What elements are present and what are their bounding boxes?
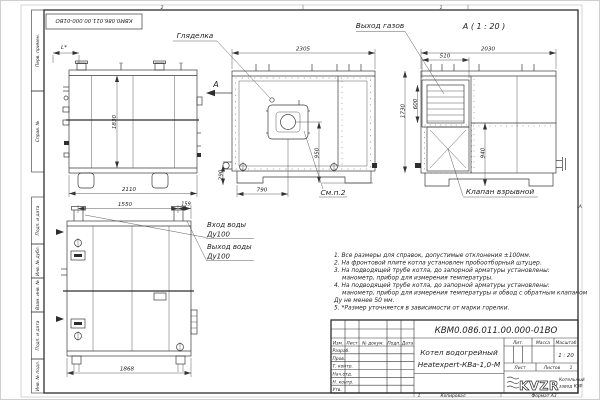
stamp-row: Пров.: [333, 356, 346, 362]
view-arrow-letter: А: [212, 80, 218, 89]
dim-rear-width: 1868: [120, 367, 135, 373]
margin-label: Справ. №: [35, 120, 41, 142]
dim-front-burner-h: 950: [314, 147, 320, 158]
dim-front-width: 2305: [296, 47, 311, 53]
dim-front-burner-x: 790: [257, 188, 268, 194]
sheets-label: Листов: [543, 365, 561, 371]
title-block: КВМ0.086.011.00.000-01ВО Изм. Лист № док…: [331, 320, 585, 393]
sight-glass-label: Гляделка: [177, 31, 214, 40]
margin-label: Подп. и дата: [35, 205, 41, 235]
water-in-dn: Ду100: [206, 231, 231, 239]
dim-a-outlet-w: 510: [440, 54, 451, 60]
drawing-sheet: 2 1 А КВМ0.086.011.00.000-01ВО Перв. при…: [0, 0, 600, 400]
note-line: 2. На фронтовой плите котла установлен п…: [334, 261, 542, 267]
dim-a-outlet-h: 600: [413, 98, 419, 109]
logo-caption-2: завод КЗР: [559, 384, 583, 390]
stamp-row: Нач.отд.: [333, 372, 353, 378]
stamp-col-data: Дата: [401, 341, 414, 347]
note-line: Ду не менее 50 мм.: [333, 298, 395, 304]
format-label: Формат А3: [531, 393, 556, 399]
gas-outlet-louver: [422, 80, 469, 127]
water-out-dn: Ду100: [206, 253, 231, 261]
dim-side-width: 2110: [122, 187, 137, 193]
explosion-valve-label: Клапан взрывной: [466, 187, 535, 196]
dim-rear-offset: 159: [181, 202, 191, 208]
gas-outlet-label: Выход газов: [356, 21, 404, 30]
water-out-label: Выход воды: [207, 243, 252, 251]
doc-number-top: КВМ0.086.011.00.000-01ВО: [55, 17, 133, 23]
product-name-2: Heatexpert-КВа-1,0-М: [418, 360, 501, 369]
note-line: 3. На подводящей трубе котла, до запорно…: [334, 268, 550, 274]
stamp-row: Утв.: [333, 387, 342, 393]
scale-label: Масштаб: [556, 340, 577, 346]
copied-label: Копировал: [440, 393, 465, 399]
rear-view: 1550 159 1868 Вход воды Ду100 Выход воды…: [56, 202, 254, 378]
zone-right: А: [578, 204, 582, 210]
notes-block: 1. Все размеры для справок, допустимые о…: [333, 253, 588, 312]
stamp-col-izm: Изм.: [333, 341, 343, 347]
note-line: 4. На подводящей трубе котла, до запорно…: [334, 283, 550, 289]
front-view: Гляделка А 2305 95: [173, 31, 377, 197]
view-direction-arrow: [206, 90, 215, 96]
sheet-label: Лист: [513, 365, 526, 371]
margin-label: Подп. и дата: [35, 320, 41, 350]
sheets-value: 1: [570, 365, 573, 371]
sight-glass: [270, 98, 274, 102]
stamp-col-podp: Подп.: [387, 341, 400, 347]
dim-a-height: 1730: [400, 103, 406, 118]
scale-value: 1 : 20: [558, 353, 574, 359]
logo-caption-1: Котельный: [559, 377, 585, 383]
doc-number: КВМ0.086.011.00.000-01ВО: [435, 326, 558, 336]
dim-side-height: 1830: [112, 114, 118, 129]
margin-label: Инв. № подл.: [35, 361, 41, 391]
dim-a-width: 2030: [481, 47, 496, 53]
kvzr-logo-text: KVZR: [519, 378, 559, 393]
note-line: 5. *Размер уточняется в зависимости от м…: [334, 306, 510, 312]
margin-label: Взам. инв. №: [35, 280, 41, 310]
stamp-row: Н. контр.: [333, 379, 354, 385]
zone-top-right: 1: [440, 5, 443, 11]
stamp-col-list: Лист: [345, 341, 358, 347]
dim-rear-span: 1550: [118, 202, 133, 208]
note-line: манометр, прибор для измерения температу…: [342, 276, 493, 282]
margin-label: Перв. примен.: [35, 34, 41, 67]
footer-strip: 1 Копировал Формат А3: [414, 393, 557, 399]
product-name-1: Котел водогрейный: [420, 348, 498, 357]
note-line: 1. Все размеры для справок, допустимые о…: [334, 253, 531, 259]
dim-a-valve-h: 940: [480, 147, 486, 158]
stamp-col-doc: № докум.: [361, 341, 384, 347]
mass-label: Масса: [536, 340, 550, 346]
stamp-row: Разраб.: [333, 348, 350, 354]
burner-opening: [281, 115, 296, 130]
zone-bottom: 1: [418, 393, 421, 399]
zone-top-left: 2: [161, 5, 164, 11]
side-view: L* 1830 2110: [53, 45, 202, 197]
view-a-caption: А ( 1 : 20 ): [462, 22, 505, 31]
lit-label: Лит.: [512, 340, 523, 346]
kvzr-logo: KVZR Котельный завод КЗР: [507, 377, 585, 393]
margin-label: Инв. № дубл.: [35, 246, 41, 276]
water-in-label: Вход воды: [207, 221, 247, 229]
margin-stamps: Перв. примен. Справ. № Подп. и дата Инв.…: [32, 10, 45, 393]
note-line: манометр, прибор для измерения температу…: [342, 291, 588, 297]
see-item-label: См.п.2: [321, 188, 346, 197]
stamp-row: Т. контр.: [333, 364, 353, 370]
dim-front-base: 290: [218, 169, 224, 180]
dim-side-l: L*: [61, 45, 67, 51]
view-a: А ( 1 : 20 ) Выход газов 2030 510: [356, 21, 566, 197]
